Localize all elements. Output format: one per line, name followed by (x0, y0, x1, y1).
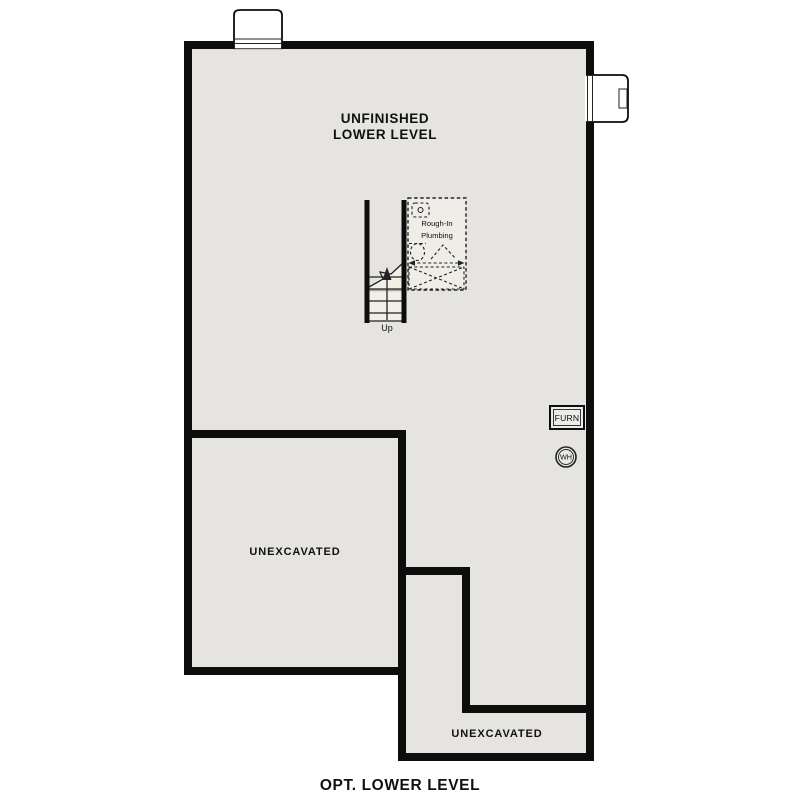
floor-area (188, 45, 590, 757)
plumbing-label-line1: Rough-In (421, 218, 453, 230)
plan-title: OPT. LOWER LEVEL (320, 777, 480, 795)
rough-in-plumbing-area (408, 198, 466, 290)
fireplace-bump-out (585, 75, 628, 122)
unexcavated-left-label: UNEXCAVATED (249, 546, 340, 558)
water-heater-label: WH (560, 453, 572, 462)
furnace-label: FURN (555, 413, 580, 423)
floor-plan-page: UNFINISHED LOWER LEVEL UNEXCAVATED UNEXC… (0, 0, 810, 810)
building-footprint (184, 45, 590, 757)
chimney-bump-out (234, 10, 282, 50)
main-room-label: UNFINISHED LOWER LEVEL (333, 111, 437, 143)
main-room-label-line2: LOWER LEVEL (333, 127, 437, 143)
plumbing-label-line2: Plumbing (421, 230, 453, 242)
rough-in-plumbing-label: Rough-In Plumbing (421, 218, 453, 242)
unexcavated-bottom-label: UNEXCAVATED (451, 728, 542, 740)
stairs-up-label: Up (381, 323, 393, 333)
main-room-label-line1: UNFINISHED (333, 111, 437, 127)
